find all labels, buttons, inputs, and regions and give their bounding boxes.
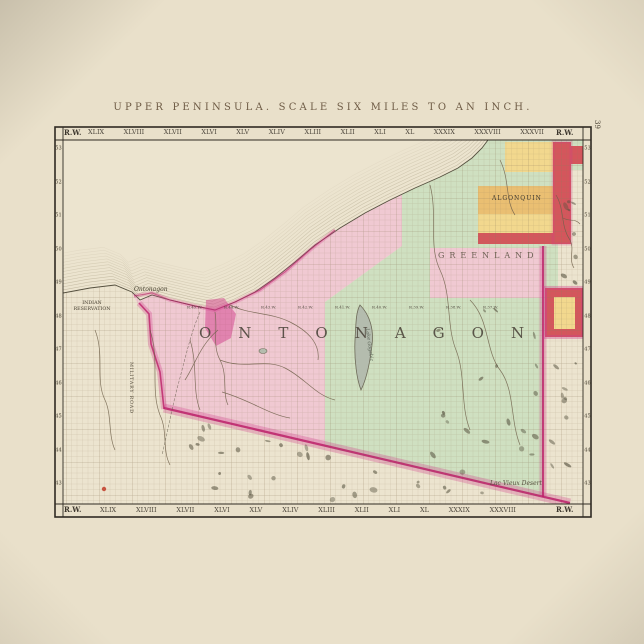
township-number-left: 49 — [55, 280, 61, 285]
range-label: R.42.W. — [297, 306, 314, 310]
range-label: R.39.W. — [408, 306, 425, 310]
range-label: R.45.W. — [186, 306, 203, 310]
map-artwork — [0, 0, 644, 644]
range-numeral: XLVII — [176, 506, 194, 514]
military-road-label: MILITARY ROAD — [128, 362, 133, 414]
township-number-right: 53 — [584, 146, 590, 151]
township-number-right: 46 — [584, 381, 590, 386]
township-number-left: 43 — [55, 481, 61, 486]
township-number-right: 52 — [584, 180, 590, 185]
township-number-right: 43 — [584, 481, 590, 486]
page-number: 39 — [593, 120, 600, 129]
township-number-left: 46 — [55, 381, 61, 386]
corner-label-bottom-left: R.W. — [64, 505, 81, 514]
range-numeral: XLIV — [269, 128, 285, 136]
township-greenland-label: GREENLAND — [438, 252, 539, 260]
township-number-left: 45 — [55, 414, 61, 419]
range-numeral: XXXIX — [449, 506, 470, 514]
small-lake — [259, 349, 267, 354]
township-number-left: 50 — [55, 247, 61, 252]
indian-reservation-label: INDIAN RESERVATION — [72, 301, 112, 312]
range-numeral: XLV — [249, 506, 262, 514]
township-number-right: 45 — [584, 414, 590, 419]
algonquin-label: ALGONQUIN — [492, 196, 542, 202]
poster: UPPER PENINSULA. SCALE SIX MILES TO AN I… — [0, 0, 644, 644]
range-numeral: XL — [405, 128, 414, 136]
range-label: R.43.W. — [260, 306, 277, 310]
township-number-right: 44 — [584, 448, 590, 453]
range-numeral: XLVI — [214, 506, 229, 514]
range-label: R.37.W. — [482, 306, 499, 310]
township-number-left: 48 — [55, 314, 61, 319]
range-numeral: XLII — [355, 506, 369, 514]
corner-label-top-left: R.W. — [64, 128, 81, 137]
corner-label-bottom-right: R.W. — [556, 505, 573, 514]
range-label: R.44.W. — [223, 306, 240, 310]
range-numeral: XLIII — [318, 506, 335, 514]
range-numeral: XXXVIII — [474, 128, 500, 136]
township-number-left: 47 — [55, 347, 61, 352]
map-title: UPPER PENINSULA. SCALE SIX MILES TO AN I… — [55, 103, 591, 113]
corner-label-top-right: R.W. — [556, 128, 573, 137]
township-number-left: 53 — [55, 146, 61, 151]
range-numeral: XLII — [341, 128, 355, 136]
range-numeral: XLVII — [164, 128, 182, 136]
lac-vieux-desert-label: Lac Vieux Desert — [490, 481, 542, 487]
range-label: R.41.W. — [334, 306, 351, 310]
township-number-right: 48 — [584, 314, 590, 319]
range-numeral: XLIX — [88, 128, 104, 136]
range-label: R.38.W. — [445, 306, 462, 310]
range-numeral: XXXVIII — [490, 506, 516, 514]
township-number-left: 44 — [55, 448, 61, 453]
township-number-right: 49 — [584, 280, 590, 285]
red-dot-mark — [102, 487, 106, 491]
range-numeral: XLI — [389, 506, 401, 514]
range-numeral: XLVIII — [136, 506, 157, 514]
range-numeral: XLIII — [304, 128, 321, 136]
range-numeral: XLIX — [100, 506, 116, 514]
range-numeral: XLI — [374, 128, 386, 136]
ontonagon-village-label: Ontonagon — [134, 287, 168, 293]
bottom-range-numerals: XLIXXLVIIIXLVIIXLVIXLVXLIVXLIIIXLIIXLIXL… — [100, 506, 516, 514]
township-number-left: 51 — [55, 213, 61, 218]
top-range-numerals: XLIXXLVIIIXLVIIXLVIXLVXLIVXLIIIXLIIXLIXL… — [88, 128, 544, 136]
township-number-right: 47 — [584, 347, 590, 352]
range-numeral: XLVI — [201, 128, 216, 136]
range-numeral: XXXVII — [520, 128, 544, 136]
range-numeral: XLIV — [282, 506, 298, 514]
range-numeral: XLVIII — [124, 128, 145, 136]
township-number-right: 50 — [584, 247, 590, 252]
range-numeral: XXXIX — [434, 128, 455, 136]
map-plate: UPPER PENINSULA. SCALE SIX MILES TO AN I… — [0, 0, 644, 644]
township-number-right: 51 — [584, 213, 590, 218]
map-content — [51, 102, 583, 504]
range-label: R.40.W. — [371, 306, 388, 310]
range-numeral: XLV — [236, 128, 249, 136]
county-name-label: ONTONAGON — [199, 326, 551, 341]
township-number-left: 52 — [55, 180, 61, 185]
range-numeral: XL — [420, 506, 429, 514]
